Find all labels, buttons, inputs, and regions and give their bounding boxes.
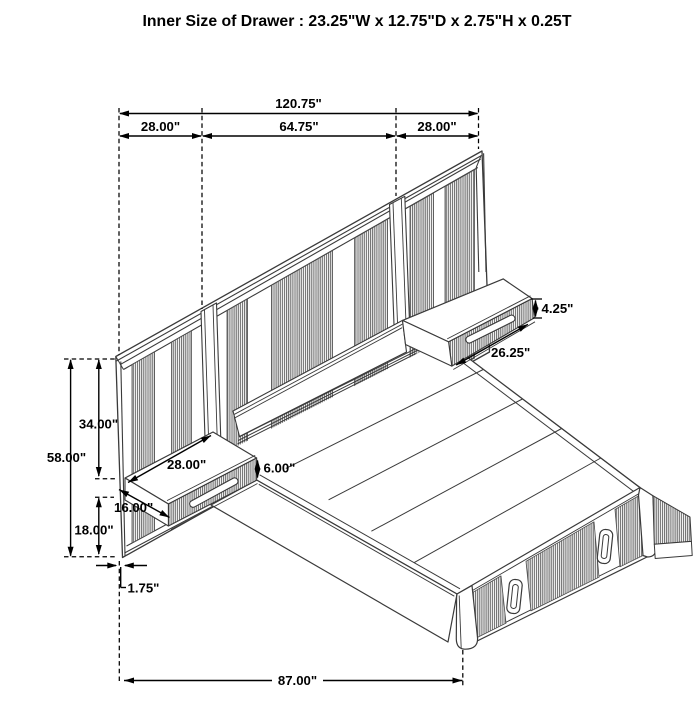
svg-text:58.00": 58.00" <box>47 450 86 465</box>
svg-text:28.00": 28.00" <box>167 457 206 472</box>
svg-text:6.00": 6.00" <box>264 461 296 476</box>
svg-text:28.00": 28.00" <box>141 119 180 134</box>
svg-text:1.75": 1.75" <box>128 581 160 596</box>
svg-text:18.00": 18.00" <box>74 523 113 538</box>
svg-text:Inner Size of Drawer : 23.25"W: Inner Size of Drawer : 23.25"W x 12.75"D… <box>143 13 572 30</box>
svg-text:34.00": 34.00" <box>79 417 118 432</box>
svg-text:4.25": 4.25" <box>542 301 574 316</box>
svg-text:16.00": 16.00" <box>114 500 153 515</box>
svg-text:120.75": 120.75" <box>275 96 322 111</box>
svg-text:64.75": 64.75" <box>279 119 318 134</box>
svg-text:87.00": 87.00" <box>278 673 317 688</box>
svg-text:26.25": 26.25" <box>491 345 530 360</box>
svg-text:28.00": 28.00" <box>417 119 456 134</box>
